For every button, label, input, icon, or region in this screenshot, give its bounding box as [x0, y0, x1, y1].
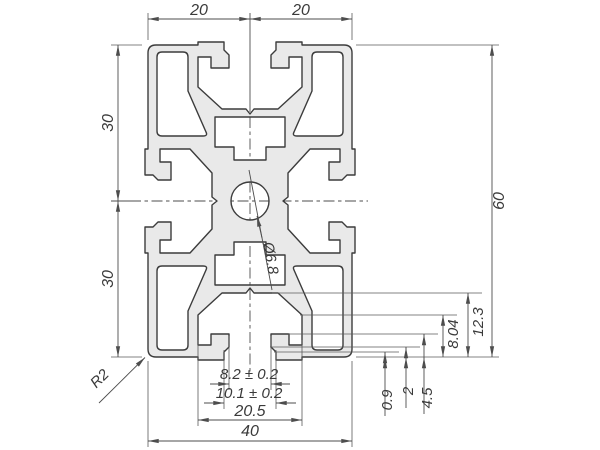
label-lip-step: 0.9 [379, 389, 396, 411]
label-top-left: 20 [189, 2, 208, 19]
label-opening-inner: 8.2 ± 0.2 [220, 366, 279, 383]
label-corner-radius: R2 [87, 366, 113, 392]
label-slot-width: 20.5 [233, 403, 265, 420]
label-width: 40 [241, 423, 259, 440]
label-left-lower: 30 [100, 270, 117, 288]
label-top-right: 20 [291, 2, 310, 19]
label-height: 60 [491, 192, 508, 210]
label-opening-outer: 10.1 ± 0.2 [216, 385, 283, 402]
label-lip-chamfer: 2 [400, 386, 417, 396]
label-lip-depth: 4.5 [419, 387, 436, 409]
drawing-canvas: 20 20 30 30 60 40 20.5 10.1 ± 0.2 8.2 ± … [0, 0, 600, 450]
label-left-upper: 30 [100, 114, 117, 132]
technical-drawing: 20 20 30 30 60 40 20.5 10.1 ± 0.2 8.2 ± … [0, 0, 600, 450]
label-slot-depth: 12.3 [470, 307, 487, 337]
label-undercut: 8.04 [445, 319, 462, 348]
